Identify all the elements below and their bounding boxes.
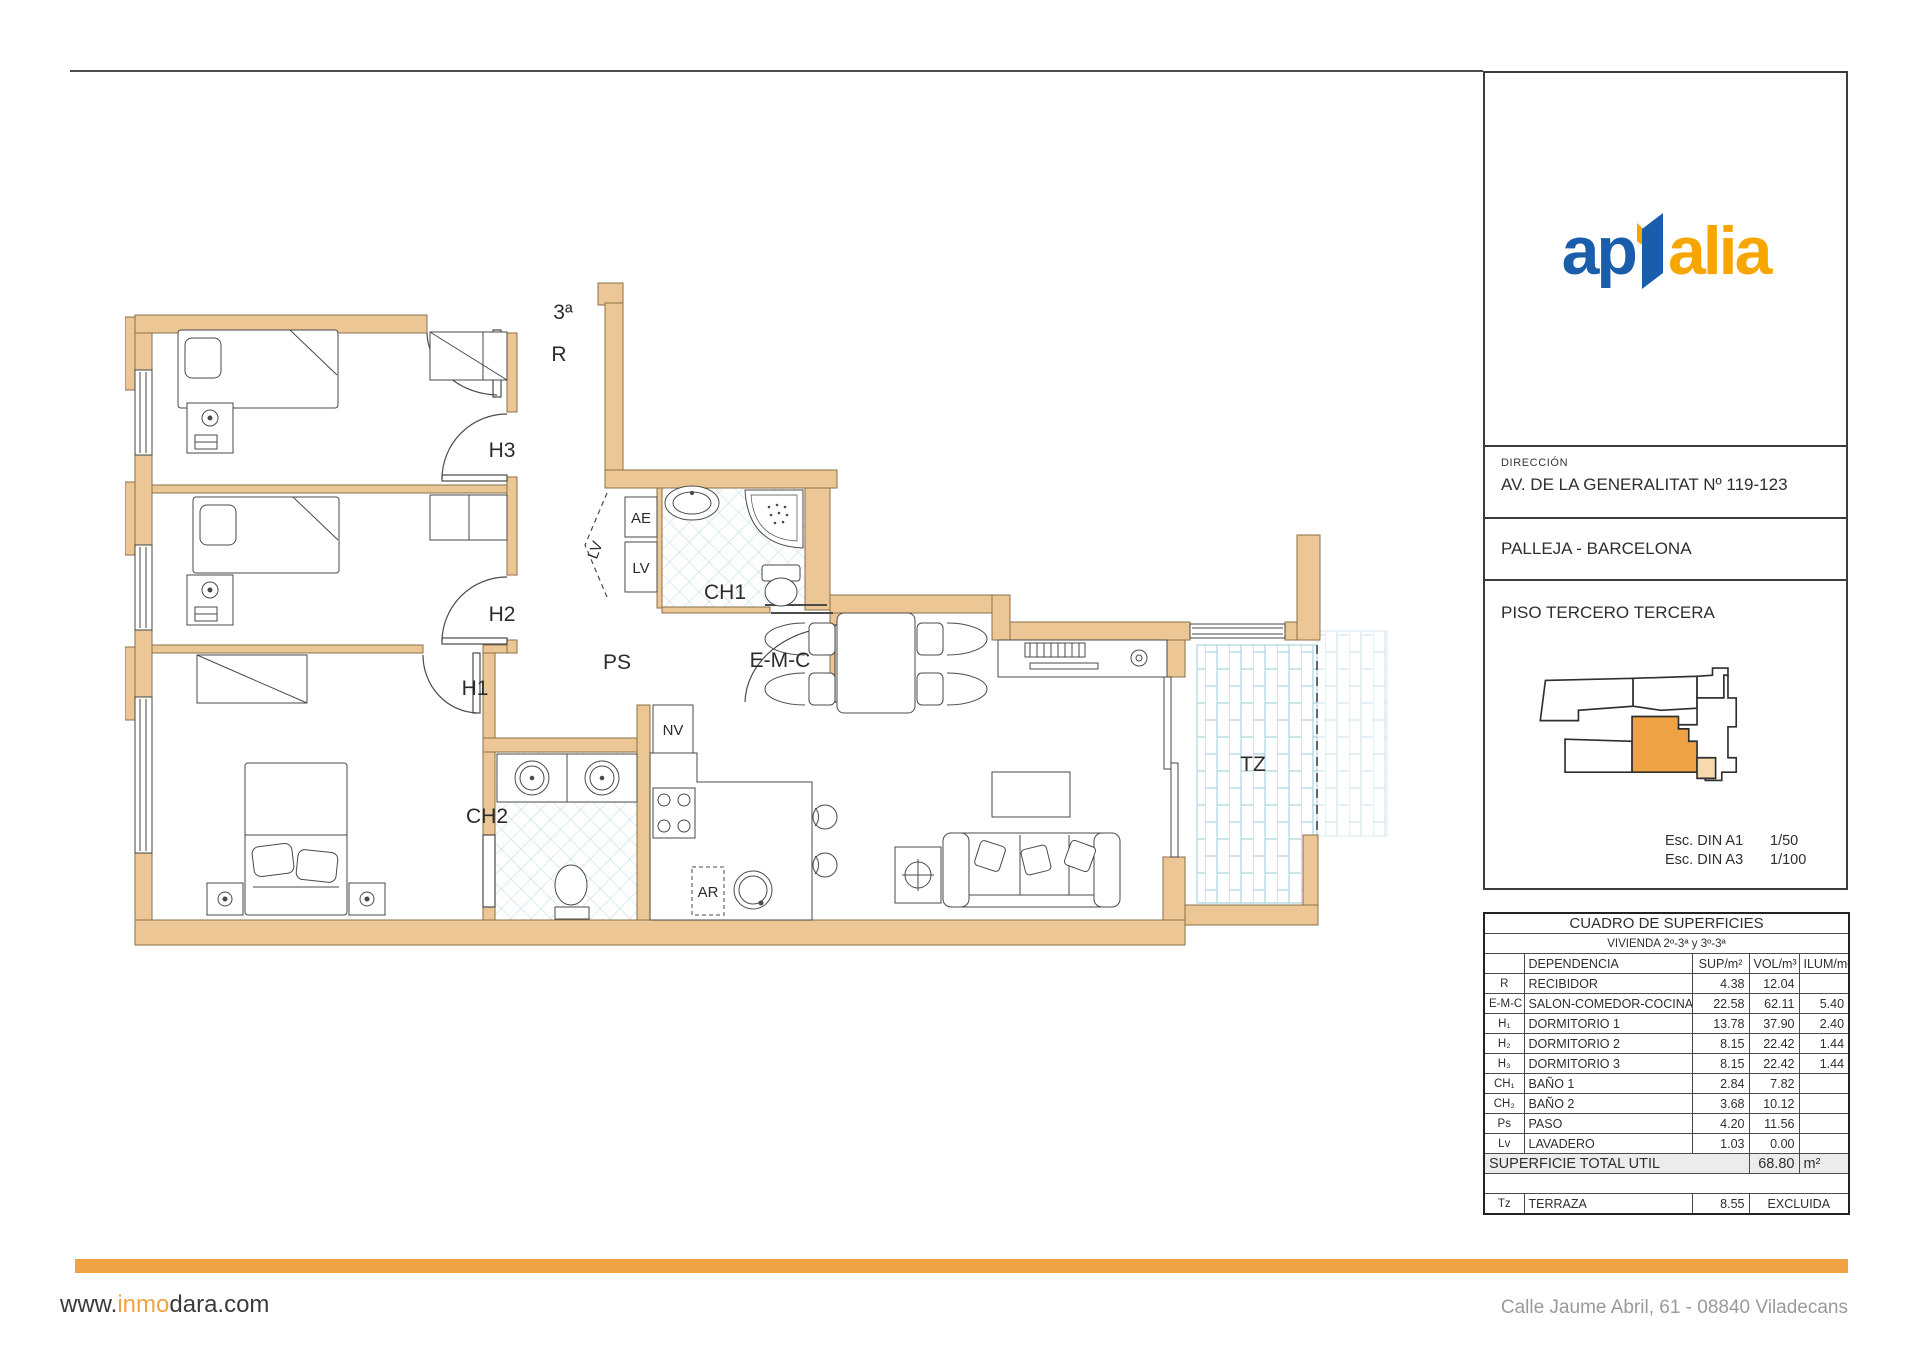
table-row: CH₂ BAÑO 2 3.68 10.12 bbox=[1484, 1094, 1849, 1114]
address-section: DIRECCIÓN AV. DE LA GENERALITAT Nº 119-1… bbox=[1485, 445, 1846, 517]
total-row: SUPERFICIE TOTAL UTIL 68.80 m² bbox=[1484, 1154, 1849, 1174]
room-sup: 22.58 bbox=[1692, 994, 1749, 1014]
floor-section: PISO TERCERO TERCERA Esc. DIN A1 1/50 Es… bbox=[1485, 579, 1846, 888]
scale-label: Esc. DIN A3 bbox=[1665, 851, 1770, 870]
terraza-sup: 8.55 bbox=[1692, 1194, 1749, 1215]
label-lv-door: LV bbox=[585, 539, 607, 561]
room-name: DORMITORIO 1 bbox=[1524, 1014, 1692, 1034]
room-name: DORMITORIO 3 bbox=[1524, 1054, 1692, 1074]
room-label-ch2: CH2 bbox=[466, 805, 508, 828]
logo-text-api: ap bbox=[1562, 212, 1635, 290]
room-label-recibidor: R bbox=[551, 343, 566, 366]
total-label: SUPERFICIE TOTAL UTIL bbox=[1484, 1154, 1749, 1174]
room-code: CH₂ bbox=[1484, 1094, 1524, 1114]
direccion-label: DIRECCIÓN bbox=[1501, 457, 1830, 469]
room-label-ps: PS bbox=[603, 651, 631, 674]
table-title: CUADRO DE SUPERFICIES bbox=[1484, 913, 1849, 934]
room-ilum bbox=[1799, 1094, 1849, 1114]
label-lv-box: LV bbox=[632, 560, 649, 577]
room-label-tz: TZ bbox=[1240, 753, 1266, 776]
room-code: CH₁ bbox=[1484, 1074, 1524, 1094]
label-ar: AR bbox=[698, 884, 719, 901]
table-row: H₃ DORMITORIO 3 8.15 22.42 1.44 bbox=[1484, 1054, 1849, 1074]
room-ilum: 1.44 bbox=[1799, 1034, 1849, 1054]
table-row: H₂ DORMITORIO 2 8.15 22.42 1.44 bbox=[1484, 1034, 1849, 1054]
room-name: SALON-COMEDOR-COCINA bbox=[1524, 994, 1692, 1014]
room-sup: 1.03 bbox=[1692, 1134, 1749, 1154]
room-ilum bbox=[1799, 1134, 1849, 1154]
total-unit: m² bbox=[1799, 1154, 1849, 1174]
col-vol: VOL/m³ bbox=[1749, 954, 1799, 974]
room-code: H₁ bbox=[1484, 1014, 1524, 1034]
room-vol: 22.42 bbox=[1749, 1054, 1799, 1074]
room-vol: 7.82 bbox=[1749, 1074, 1799, 1094]
scale-list: Esc. DIN A1 1/50 Esc. DIN A3 1/100 bbox=[1665, 832, 1822, 870]
logo-door-icon bbox=[1636, 211, 1666, 291]
city-section: PALLEJA - BARCELONA bbox=[1485, 517, 1846, 579]
table-row: H₁ DORMITORIO 1 13.78 37.90 2.40 bbox=[1484, 1014, 1849, 1034]
scale-label: Esc. DIN A1 bbox=[1665, 832, 1770, 851]
room-code: R bbox=[1484, 974, 1524, 994]
room-vol: 11.56 bbox=[1749, 1114, 1799, 1134]
terraza-note: EXCLUIDA bbox=[1749, 1194, 1849, 1215]
col-sup: SUP/m² bbox=[1692, 954, 1749, 974]
floor-plan: 3ª R H3 H2 H1 PS CH1 E-M-C CH2 TZ AE LV … bbox=[125, 235, 1405, 1005]
table-row: Ps PASO 4.20 11.56 bbox=[1484, 1114, 1849, 1134]
floor-value: PISO TERCERO TERCERA bbox=[1501, 603, 1830, 623]
room-sup: 2.84 bbox=[1692, 1074, 1749, 1094]
room-name: DORMITORIO 2 bbox=[1524, 1034, 1692, 1054]
footer-accent-bar bbox=[75, 1259, 1848, 1273]
footer-url[interactable]: www.inmodara.com bbox=[60, 1291, 269, 1319]
room-sup: 8.15 bbox=[1692, 1054, 1749, 1074]
logo-text-alia: alia bbox=[1668, 212, 1769, 290]
apialia-logo: ap alia bbox=[1485, 191, 1846, 311]
url-suffix: dara.com bbox=[169, 1291, 269, 1318]
room-vol: 22.42 bbox=[1749, 1034, 1799, 1054]
url-prefix: www. bbox=[60, 1291, 117, 1318]
label-nv: NV bbox=[663, 722, 684, 739]
room-label-entrance: 3ª bbox=[553, 301, 573, 324]
room-label-h2: H2 bbox=[489, 603, 516, 626]
surfaces-table: CUADRO DE SUPERFICIES VIVIENDA 2º-3ª y 3… bbox=[1483, 912, 1850, 1215]
room-code: H₃ bbox=[1484, 1054, 1524, 1074]
room-vol: 0.00 bbox=[1749, 1134, 1799, 1154]
highlighted-unit-annex bbox=[1697, 758, 1716, 779]
room-sup: 8.15 bbox=[1692, 1034, 1749, 1054]
room-label-ch1: CH1 bbox=[704, 581, 746, 604]
room-code: E-M-C bbox=[1484, 994, 1524, 1014]
table-subtitle: VIVIENDA 2º-3ª y 3º-3ª bbox=[1484, 934, 1849, 954]
room-code: Ps bbox=[1484, 1114, 1524, 1134]
room-vol: 10.12 bbox=[1749, 1094, 1799, 1114]
terrace-floor bbox=[1197, 631, 1387, 903]
room-sup: 4.20 bbox=[1692, 1114, 1749, 1134]
room-name: BAÑO 1 bbox=[1524, 1074, 1692, 1094]
table-row: CH₁ BAÑO 1 2.84 7.82 bbox=[1484, 1074, 1849, 1094]
room-name: LAVADERO bbox=[1524, 1134, 1692, 1154]
room-sup: 4.38 bbox=[1692, 974, 1749, 994]
room-name: BAÑO 2 bbox=[1524, 1094, 1692, 1114]
scale-row: Esc. DIN A3 1/100 bbox=[1665, 851, 1822, 870]
terraza-name: TERRAZA bbox=[1524, 1194, 1692, 1215]
footer-address: Calle Jaume Abril, 61 - 08840 Viladecans bbox=[1501, 1297, 1848, 1319]
label-ae: AE bbox=[631, 510, 651, 527]
url-highlight: inmo bbox=[117, 1291, 169, 1318]
room-vol: 62.11 bbox=[1749, 994, 1799, 1014]
room-ilum: 1.44 bbox=[1799, 1054, 1849, 1074]
room-ilum bbox=[1799, 1074, 1849, 1094]
room-ilum: 5.40 bbox=[1799, 994, 1849, 1014]
scale-row: Esc. DIN A1 1/50 bbox=[1665, 832, 1822, 851]
col-ilum: ILUM/m² bbox=[1799, 954, 1849, 974]
room-sup: 13.78 bbox=[1692, 1014, 1749, 1034]
room-label-h1: H1 bbox=[462, 677, 489, 700]
scale-value: 1/50 bbox=[1770, 832, 1822, 851]
table-row: Lv LAVADERO 1.03 0.00 bbox=[1484, 1134, 1849, 1154]
room-ilum: 2.40 bbox=[1799, 1014, 1849, 1034]
info-panel: ap alia DIRECCIÓN AV. DE LA GENERALITAT … bbox=[1483, 71, 1848, 890]
terraza-row: Tz TERRAZA 8.55 EXCLUIDA bbox=[1484, 1194, 1849, 1215]
table-row: E-M-C SALON-COMEDOR-COCINA 22.58 62.11 5… bbox=[1484, 994, 1849, 1014]
room-label-h3: H3 bbox=[489, 439, 516, 462]
room-vol: 12.04 bbox=[1749, 974, 1799, 994]
scale-value: 1/100 bbox=[1770, 851, 1822, 870]
surfaces-panel: CUADRO DE SUPERFICIES VIVIENDA 2º-3ª y 3… bbox=[1483, 912, 1848, 1215]
col-dependencia: DEPENDENCIA bbox=[1524, 954, 1692, 974]
room-sup: 3.68 bbox=[1692, 1094, 1749, 1114]
building-minimap bbox=[1533, 667, 1793, 832]
total-value: 68.80 bbox=[1749, 1154, 1799, 1174]
table-header-row: DEPENDENCIA SUP/m² VOL/m³ ILUM/m² bbox=[1484, 954, 1849, 974]
room-label-emc: E-M-C bbox=[750, 649, 811, 672]
table-row: R RECIBIDOR 4.38 12.04 bbox=[1484, 974, 1849, 994]
room-name: PASO bbox=[1524, 1114, 1692, 1134]
room-name: RECIBIDOR bbox=[1524, 974, 1692, 994]
terraza-code: Tz bbox=[1484, 1194, 1524, 1215]
room-code: H₂ bbox=[1484, 1034, 1524, 1054]
top-rule bbox=[70, 70, 1483, 72]
room-ilum bbox=[1799, 1114, 1849, 1134]
terrace-slider bbox=[1164, 677, 1178, 857]
room-ilum bbox=[1799, 974, 1849, 994]
room-code: Lv bbox=[1484, 1134, 1524, 1154]
address-value: AV. DE LA GENERALITAT Nº 119-123 bbox=[1501, 475, 1830, 495]
room-vol: 37.90 bbox=[1749, 1014, 1799, 1034]
